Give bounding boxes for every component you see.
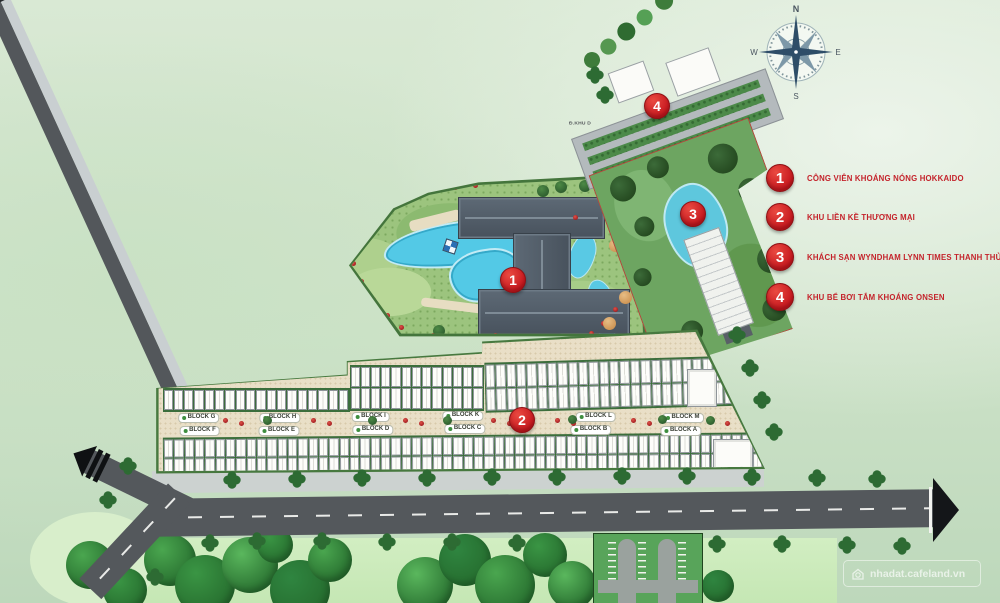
- townhouse-unit: [486, 387, 496, 410]
- townhouse-unit: [473, 436, 482, 454]
- zone-townhouses: BLOCK G BLOCK H BLOCK I BLOCK K BLOCK L …: [150, 328, 765, 478]
- townhouse-unit: [506, 387, 516, 410]
- townhouse-unit: [535, 436, 544, 454]
- townhouse-unit: [380, 437, 389, 455]
- townhouse-unit: [506, 363, 516, 386]
- townhouse-unit: [566, 436, 575, 454]
- townhouse-unit: [236, 457, 245, 475]
- townhouse-unit: [246, 457, 255, 475]
- street-tree-icon: [149, 571, 161, 583]
- townhouse-unit: [380, 456, 389, 474]
- townhouse-unit: [318, 390, 327, 410]
- townhouse-unit: [734, 381, 744, 404]
- flower-icon: [555, 418, 560, 423]
- townhouse-unit: [485, 364, 495, 387]
- street-tree-icon: [291, 473, 303, 485]
- townhouse-unit: [402, 388, 411, 409]
- townhouse-unit: [723, 357, 733, 380]
- block-name: BLOCK H: [269, 414, 296, 421]
- townhouse-unit: [225, 438, 234, 456]
- townhouse-unit: [473, 367, 482, 388]
- townhouse-unit: [184, 457, 193, 475]
- block-name: BLOCK A: [670, 427, 697, 434]
- townhouse-unit: [329, 456, 338, 474]
- townhouse-unit: [422, 388, 431, 409]
- townhouse-unit: [628, 435, 637, 453]
- flower-icon: [223, 418, 228, 423]
- legend-marker-1: 1: [766, 164, 794, 192]
- block-dot-icon: [356, 428, 360, 432]
- map-marker-1: 1: [500, 267, 526, 293]
- flower-icon: [311, 418, 316, 423]
- map-marker-3: 3: [680, 201, 706, 227]
- townhouse-unit: [277, 438, 286, 456]
- townhouse-unit: [690, 434, 699, 452]
- townhouse-unit: [370, 456, 379, 474]
- townhouse-unit: [618, 454, 627, 472]
- townhouse-unit: [164, 390, 173, 410]
- legend-marker-3: 3: [766, 243, 794, 271]
- tree-icon: [548, 561, 596, 603]
- parking-lot: [593, 533, 703, 603]
- townhouse-unit: [504, 455, 513, 473]
- townhouse-unit: [442, 455, 451, 473]
- townhouse-unit: [277, 457, 286, 475]
- tree-cluster-icon: [644, 153, 672, 181]
- townhouse-unit: [744, 380, 754, 403]
- legend-item: 4 KHU BỂ BƠI TẮM KHOÁNG ONSEN: [766, 283, 945, 311]
- townhouse-unit: [432, 367, 441, 388]
- townhouse-unit: [163, 439, 172, 457]
- townhouse-unit: [545, 436, 554, 454]
- tree-icon: [308, 538, 352, 582]
- street-tree-icon: [226, 474, 238, 486]
- townhouse-unit: [568, 385, 578, 408]
- townhouse-unit: [205, 457, 214, 475]
- shrub-icon: [658, 415, 667, 424]
- townhouse-unit: [443, 388, 452, 409]
- townhouse-unit: [463, 455, 472, 473]
- flower-icon: [419, 421, 424, 426]
- street-tree-icon: [776, 538, 788, 550]
- block-label: BLOCK G: [178, 413, 220, 423]
- townhouse-unit: [546, 454, 555, 472]
- townhouse-unit: [628, 453, 637, 471]
- townhouse-unit: [318, 456, 327, 474]
- block-name: BLOCK B: [580, 426, 607, 433]
- flower-icon: [395, 203, 400, 208]
- townhouse-unit: [361, 388, 370, 409]
- street-tree-icon: [316, 535, 328, 547]
- street-tree-icon: [841, 539, 853, 551]
- road-arrow-east-icon: [933, 478, 959, 542]
- street-tree-icon: [811, 472, 823, 484]
- townhouse-unit: [504, 436, 513, 454]
- shrub-icon: [368, 416, 377, 425]
- townhouse-unit: [576, 435, 585, 453]
- block-name: BLOCK L: [585, 413, 612, 420]
- townhouse-unit: [723, 381, 733, 404]
- townhouse-unit: [620, 384, 630, 407]
- flower-icon: [403, 418, 408, 423]
- townhouse-unit: [547, 362, 557, 385]
- street-tree-icon: [681, 470, 693, 482]
- townhouse-unit: [370, 437, 379, 455]
- townhouse-unit: [432, 455, 441, 473]
- street-tree-icon: [711, 538, 723, 550]
- townhouse-unit: [548, 386, 558, 409]
- street-tree-icon: [421, 472, 433, 484]
- townhouse-unit: [236, 438, 245, 456]
- block-dot-icon: [355, 415, 359, 419]
- townhouse-unit: [661, 383, 671, 406]
- tree-icon: [351, 315, 363, 327]
- townhouse-unit: [349, 456, 358, 474]
- townhouse-unit: [525, 454, 534, 472]
- townhouse-unit: [473, 455, 482, 473]
- townhouse-unit: [599, 361, 609, 384]
- townhouse-unit: [308, 390, 317, 410]
- townhouse-unit: [579, 385, 589, 408]
- townhouse-unit: [349, 437, 358, 455]
- townhouse-unit: [495, 364, 505, 387]
- street-tree-icon: [616, 470, 628, 482]
- flower-icon: [431, 333, 436, 338]
- flower-icon: [491, 418, 496, 423]
- street-tree-icon: [589, 69, 601, 81]
- townhouse-unit: [494, 436, 503, 454]
- townhouse-unit: [267, 390, 276, 410]
- townhouse-unit: [329, 390, 338, 410]
- townhouse-unit: [412, 367, 421, 388]
- townhouse-unit: [339, 390, 348, 410]
- townhouse-unit: [659, 435, 668, 453]
- townhouse-unit: [453, 367, 462, 388]
- townhouse-unit: [640, 360, 650, 383]
- townhouse-unit: [236, 390, 245, 410]
- block-name: BLOCK D: [362, 426, 389, 433]
- street-tree-icon: [731, 329, 743, 341]
- tree-row: [582, 50, 603, 71]
- townhouse-unit: [184, 390, 193, 410]
- townhouse-unit: [599, 384, 609, 407]
- compass-e: E: [835, 48, 840, 57]
- townhouse-unit: [422, 437, 431, 455]
- townhouse-unit: [556, 436, 565, 454]
- block-name: BLOCK F: [189, 427, 216, 434]
- townhouse-unit: [194, 390, 203, 410]
- legend-label: KHÁCH SẠN WYNDHAM LYNN TIMES THANH THỦY: [807, 253, 1000, 262]
- townhouse-unit: [256, 390, 265, 410]
- flower-icon: [239, 421, 244, 426]
- block-label: BLOCK F: [179, 426, 220, 436]
- street-tree-icon: [486, 471, 498, 483]
- townhouse-unit: [463, 388, 472, 409]
- townhouse-unit: [215, 390, 224, 410]
- street-tree-icon: [102, 494, 114, 506]
- townhouse-unit: [277, 390, 286, 410]
- townhouse-unit: [412, 388, 421, 409]
- townhouse-unit: [174, 390, 183, 410]
- townhouse-subrow: [164, 390, 349, 410]
- townhouse-unit: [607, 435, 616, 453]
- street-tree-icon: [381, 536, 393, 548]
- block-label: BLOCK D: [352, 425, 393, 435]
- townhouse-unit: [329, 438, 338, 456]
- block-name: BLOCK C: [454, 425, 481, 432]
- townhouse-unit: [442, 437, 451, 455]
- townhouse-unit: [432, 388, 441, 409]
- block-label: BLOCK A: [660, 426, 701, 436]
- shrub-icon: [568, 415, 577, 424]
- townhouse-unit: [411, 455, 420, 473]
- townhouse-unit: [361, 367, 370, 388]
- townhouse-unit: [308, 456, 317, 474]
- townhouse-unit: [659, 453, 668, 471]
- townhouse-unit: [298, 438, 307, 456]
- townhouse-unit: [453, 455, 462, 473]
- townhouse-unit: [298, 456, 307, 474]
- townhouse-unit: [401, 455, 410, 473]
- townhouse-unit: [618, 435, 627, 453]
- townhouse-unit: [515, 454, 524, 472]
- street-tree-icon: [356, 472, 368, 484]
- tree-icon: [537, 185, 549, 197]
- townhouse-unit: [701, 453, 710, 471]
- street-tree-icon: [251, 535, 263, 547]
- townhouse-unit: [401, 437, 410, 455]
- townhouse-unit: [267, 457, 276, 475]
- block-dot-icon: [448, 427, 452, 431]
- townhouse-unit: [225, 457, 234, 475]
- tree-cluster-icon: [704, 139, 742, 177]
- townhouse-unit: [308, 438, 317, 456]
- block-dot-icon: [262, 429, 266, 433]
- main-road: [150, 489, 938, 537]
- townhouse-unit: [671, 359, 681, 382]
- block-dot-icon: [579, 415, 583, 419]
- townhouse-unit: [597, 435, 606, 453]
- block-dot-icon: [183, 429, 187, 433]
- compass-rose-icon: N E S W: [750, 2, 842, 100]
- block-name: BLOCK M: [672, 414, 700, 421]
- townhouse-ground: BLOCK G BLOCK H BLOCK I BLOCK K BLOCK L …: [153, 331, 763, 476]
- block-dot-icon: [182, 416, 186, 420]
- townhouse-unit: [690, 453, 699, 471]
- townhouse-unit: [537, 386, 547, 409]
- townhouse-unit: [649, 453, 658, 471]
- flower-icon: [725, 421, 730, 426]
- townhouse-unit: [680, 453, 689, 471]
- block-name: BLOCK K: [452, 412, 479, 419]
- townhouse-unit: [339, 456, 348, 474]
- townhouse-unit: [597, 454, 606, 472]
- townhouse-subrow: [351, 388, 483, 409]
- townhouse-unit: [484, 455, 493, 473]
- townhouse-unit: [463, 436, 472, 454]
- street-tree-icon: [551, 471, 563, 483]
- townhouse-unit: [184, 439, 193, 457]
- townhouse-unit: [298, 390, 307, 410]
- street-tree-icon: [446, 536, 458, 548]
- townhouse-unit: [516, 363, 526, 386]
- townhouse-unit: [391, 388, 400, 409]
- townhouse-unit: [669, 435, 678, 453]
- flower-icon: [357, 239, 362, 244]
- townhouse-unit: [391, 367, 400, 388]
- townhouse-unit: [422, 455, 431, 473]
- townhouse-unit: [526, 363, 536, 386]
- site-plan-map: BLOCK G BLOCK H BLOCK I BLOCK K BLOCK L …: [0, 0, 1000, 603]
- street-tree-icon: [768, 426, 780, 438]
- townhouse-unit: [256, 457, 265, 475]
- townhouse-unit: [733, 357, 743, 380]
- townhouse-unit: [588, 361, 598, 384]
- townhouse-unit: [535, 454, 544, 472]
- shrub-icon: [706, 416, 715, 425]
- townhouse-unit: [246, 438, 255, 456]
- block-label: BLOCK L: [575, 412, 616, 422]
- flower-icon: [413, 337, 418, 342]
- townhouse-unit: [608, 454, 617, 472]
- flower-icon: [327, 421, 332, 426]
- shrub-icon: [443, 416, 452, 425]
- townhouse-unit: [215, 457, 224, 475]
- legend-marker-4: 4: [766, 283, 794, 311]
- block-label: BLOCK M: [662, 413, 704, 423]
- townhouse-unit: [670, 453, 679, 471]
- townhouse-unit: [651, 383, 661, 406]
- townhouse-unit: [661, 359, 671, 382]
- house-search-icon: [851, 567, 865, 581]
- townhouse-unit: [484, 436, 493, 454]
- townhouse-unit: [557, 362, 567, 385]
- townhouse-unit: [752, 434, 761, 452]
- townhouse-unit: [287, 390, 296, 410]
- townhouse-unit: [287, 438, 296, 456]
- townhouse-row: [350, 365, 484, 411]
- street-tree-icon: [756, 394, 768, 406]
- tree-cluster-icon: [735, 175, 766, 206]
- townhouse-unit: [174, 457, 183, 475]
- townhouse-unit: [589, 385, 599, 408]
- townhouse-unit: [205, 390, 214, 410]
- townhouse-unit: [391, 456, 400, 474]
- townhouse-unit: [360, 437, 369, 455]
- block-dot-icon: [664, 429, 668, 433]
- townhouse-unit: [422, 367, 431, 388]
- townhouse-unit: [587, 435, 596, 453]
- townhouse-unit: [432, 437, 441, 455]
- townhouse-unit: [402, 367, 411, 388]
- tree-icon: [345, 293, 357, 305]
- townhouse-unit: [194, 439, 203, 457]
- flower-icon: [647, 421, 652, 426]
- street-tree-icon: [122, 460, 134, 472]
- townhouse-unit: [318, 438, 327, 456]
- townhouse-unit: [453, 388, 462, 409]
- block-name: BLOCK E: [268, 427, 295, 434]
- flower-icon: [473, 183, 478, 188]
- townhouse-unit: [371, 388, 380, 409]
- townhouse-unit: [619, 360, 629, 383]
- legend-label: KHU LIỀN KỀ THƯƠNG MẠI: [807, 213, 915, 222]
- townhouse-unit: [267, 438, 276, 456]
- road-end-bar: [929, 487, 932, 533]
- townhouse-unit: [700, 434, 709, 452]
- tree-icon: [389, 185, 401, 197]
- townhouse-unit: [411, 437, 420, 455]
- flower-icon: [359, 279, 364, 284]
- townhouse-unit: [496, 387, 506, 410]
- townhouse-unit: [527, 386, 537, 409]
- street-name-label: Đ.KHU D: [569, 120, 591, 126]
- townhouse-unit: [360, 456, 369, 474]
- townhouse-unit: [649, 435, 658, 453]
- townhouse-subrow: [351, 367, 483, 388]
- townhouse-unit: [752, 452, 761, 470]
- flower-icon: [399, 325, 404, 330]
- townhouse-unit: [225, 390, 234, 410]
- townhouse-unit: [371, 367, 380, 388]
- compass-n: N: [793, 4, 800, 14]
- townhouse-unit: [381, 388, 390, 409]
- flower-icon: [453, 185, 458, 190]
- map-marker-4: 4: [644, 93, 670, 119]
- legend-item: 2 KHU LIỀN KỀ THƯƠNG MẠI: [766, 203, 915, 231]
- street-tree-icon: [871, 473, 883, 485]
- street-tree-icon: [599, 89, 611, 101]
- legend-item: 3 KHÁCH SẠN WYNDHAM LYNN TIMES THANH THỦ…: [766, 243, 1000, 271]
- townhouse-unit: [443, 367, 452, 388]
- block-dot-icon: [574, 428, 578, 432]
- townhouse-unit: [630, 383, 640, 406]
- townhouse-unit: [473, 388, 482, 409]
- block-label: BLOCK C: [444, 424, 485, 434]
- tree-cluster-icon: [632, 214, 658, 240]
- flower-icon: [385, 313, 390, 318]
- street-tree-icon: [896, 540, 908, 552]
- watermark-text: nhadat.cafeland.vn: [870, 568, 965, 580]
- flower-icon: [371, 297, 376, 302]
- townhouse-unit: [246, 390, 255, 410]
- townhouse-unit: [525, 436, 534, 454]
- townhouse-unit: [609, 361, 619, 384]
- tree-cluster-icon: [606, 172, 639, 205]
- townhouse-unit: [174, 439, 183, 457]
- compass-s: S: [793, 92, 798, 100]
- townhouse-unit: [453, 437, 462, 455]
- townhouse-unit: [287, 456, 296, 474]
- flower-icon: [413, 195, 418, 200]
- compass-w: W: [750, 48, 758, 57]
- legend-label: CÔNG VIÊN KHOÁNG NÓNG HOKKAIDO: [807, 174, 964, 183]
- street-tree-icon: [511, 537, 523, 549]
- townhouse-unit: [630, 360, 640, 383]
- legend-marker-2: 2: [766, 203, 794, 231]
- tree-icon: [373, 193, 385, 205]
- block-label: BLOCK E: [258, 426, 299, 436]
- townhouse-unit: [194, 457, 203, 475]
- townhouse-unit: [494, 455, 503, 473]
- townhouse-unit: [577, 454, 586, 472]
- street-tree-icon: [744, 362, 756, 374]
- map-marker-2: 2: [509, 407, 535, 433]
- tree-cluster-icon: [631, 266, 654, 289]
- block-name: BLOCK G: [188, 414, 216, 421]
- corner-building: [687, 369, 717, 407]
- townhouse-unit: [556, 454, 565, 472]
